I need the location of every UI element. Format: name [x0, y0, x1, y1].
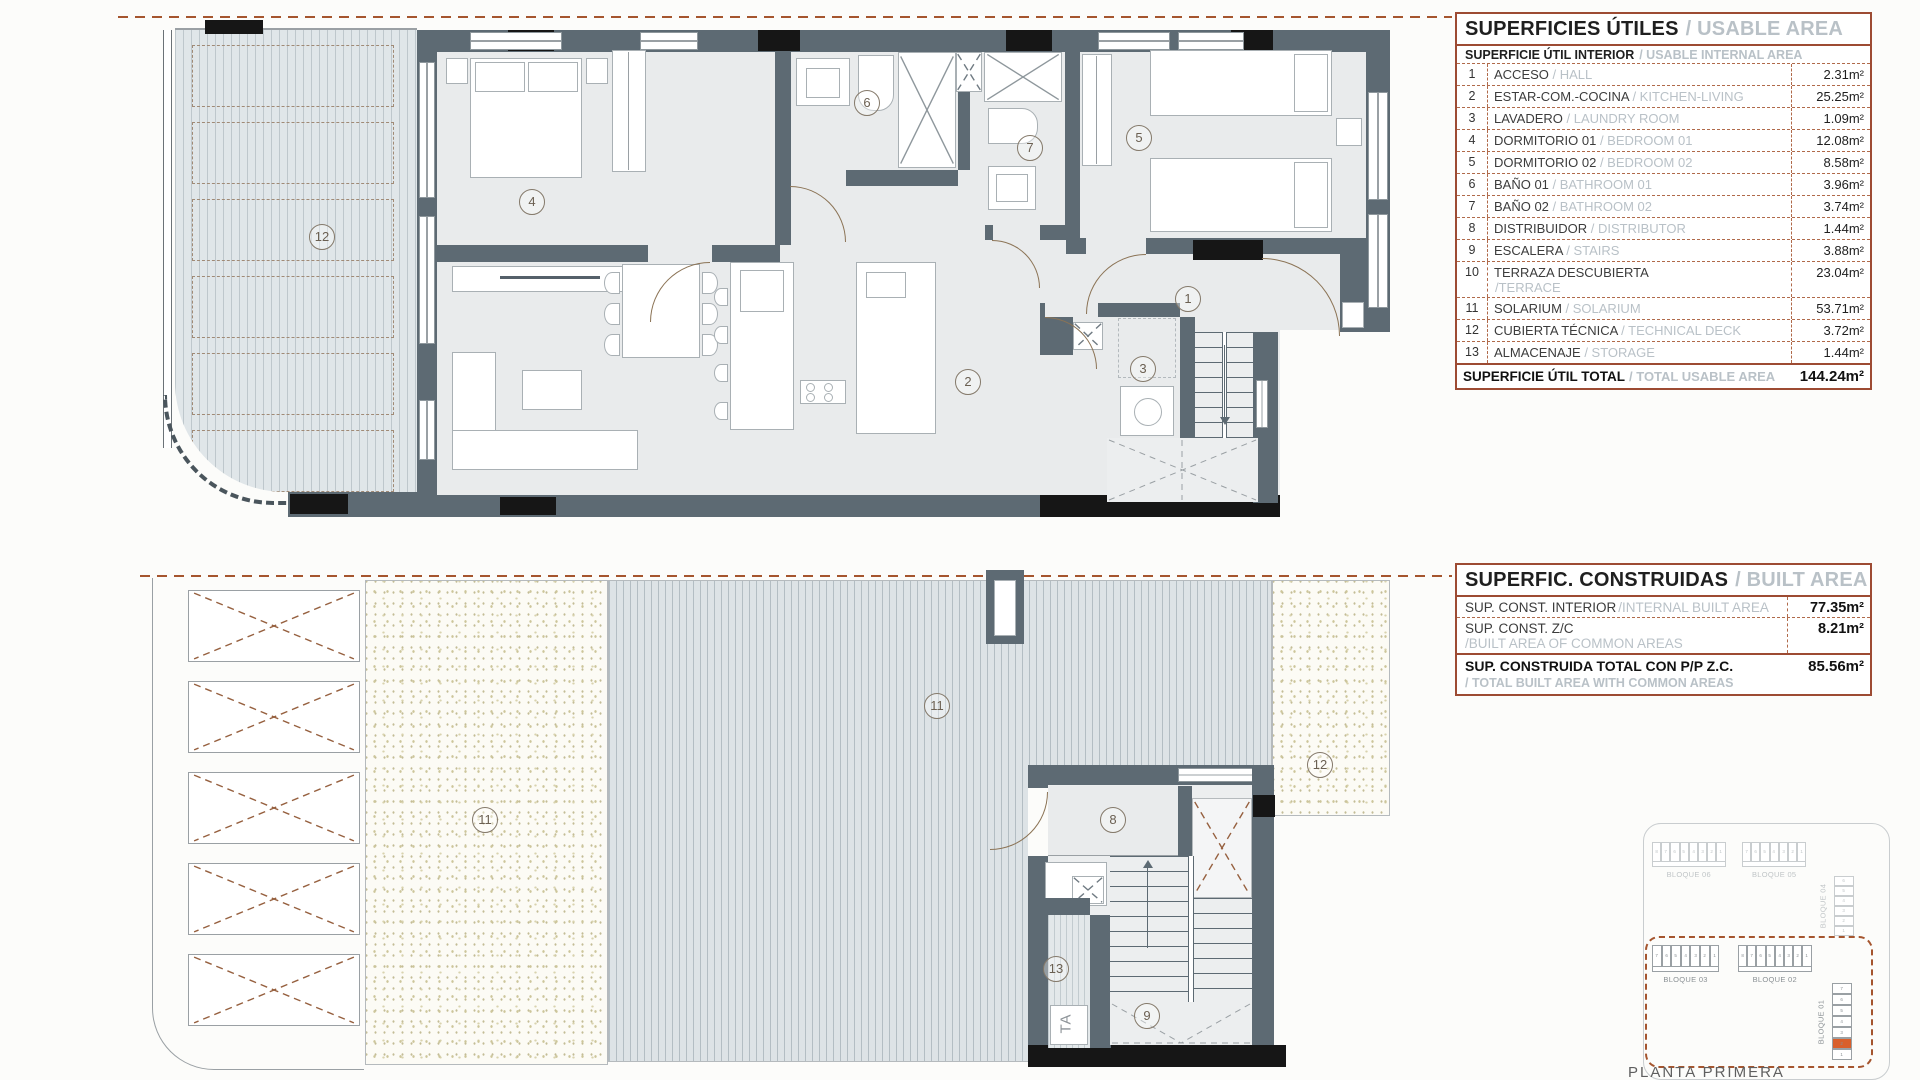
wall-stub: [1178, 786, 1192, 856]
key-plan-block: 87654321: [1738, 945, 1812, 967]
key-plan-block-balcony-row: [1652, 967, 1719, 972]
key-plan-block: 7654321: [1652, 945, 1719, 967]
wall-bath2-bottom: [985, 225, 993, 240]
built-area-table: SUPERFIC. CONSTRUIDAS / BUILT AREA SUP. …: [1455, 563, 1872, 696]
entrance-threshold: [1342, 302, 1364, 328]
usable-area-row: 11SOLARIUM / SOLARIUM53.71m²: [1457, 297, 1870, 319]
room-label-bathroom2: 7: [1017, 135, 1043, 161]
chimney-flue: [994, 580, 1016, 636]
solarium-deck-top: [608, 580, 1272, 770]
key-plan-block-balcony-row: [1738, 967, 1812, 972]
sliding-door: [419, 62, 435, 198]
boundary-dashed-line-lower: [140, 575, 1452, 577]
room-label-distributor: 8: [1100, 807, 1126, 833]
wall-bedroom1: [437, 245, 648, 262]
column-block: [500, 497, 556, 515]
column-block: [1253, 795, 1275, 817]
key-plan-block-label: BLOQUE 06: [1652, 870, 1726, 879]
solarium-deck-side: [608, 768, 1028, 1062]
key-plan-block: 654321: [1834, 876, 1854, 936]
wall-bedroom2-bottom: [1146, 238, 1390, 254]
room-label-terrace: 12: [309, 224, 335, 250]
column-block: [290, 494, 348, 514]
room-label-technical-deck: 12: [1307, 752, 1333, 778]
built-area-title: SUPERFIC. CONSTRUIDAS / BUILT AREA: [1457, 565, 1870, 597]
window: [1178, 768, 1258, 782]
room-label-stairs: 9: [1134, 1003, 1160, 1029]
wall-bedroom2-bottom: [1066, 238, 1086, 254]
room-label-bedroom1: 4: [519, 189, 545, 215]
key-plan-block: 7654321: [1832, 983, 1852, 1060]
key-plan-block: 7654321: [1742, 842, 1806, 862]
stair-block-wall-bottom: [1028, 1045, 1286, 1067]
sliding-door: [419, 216, 435, 344]
usable-area-subtitle: SUPERFICIE ÚTIL INTERIOR / USABLE INTERN…: [1457, 46, 1870, 63]
column-block: [1006, 30, 1052, 51]
usable-area-total-row: SUPERFICIE ÚTIL TOTAL / TOTAL USABLE ARE…: [1457, 363, 1870, 388]
key-plan-block-label: BLOQUE 02: [1738, 975, 1812, 984]
key-plan-block-balcony-row: [1742, 862, 1806, 867]
parking-space: [188, 863, 360, 935]
usable-area-row: 9ESCALERA / STAIRS3.88m²: [1457, 239, 1870, 261]
room-label-solarium-deck: 11: [924, 693, 950, 719]
usable-area-row: 2ESTAR-COM.-COCINA / KITCHEN-LIVING25.25…: [1457, 85, 1870, 107]
key-plan-block-balcony-row: [1652, 862, 1726, 867]
parking-space: [188, 954, 360, 1026]
stairs-dashed-return: [1107, 438, 1258, 502]
wall-stairs-left: [1180, 317, 1195, 438]
sliding-door: [419, 400, 435, 460]
usable-area-row: 1ACCESO / HALL2.31m²: [1457, 63, 1870, 85]
usable-area-row: 6BAÑO 01 / BATHROOM 013.96m²: [1457, 173, 1870, 195]
parking-space: [188, 681, 360, 753]
window: [1368, 214, 1388, 308]
awning-dash-box: [192, 45, 394, 107]
door-arc-distributor: [990, 792, 1048, 850]
wall-bath1-bottom: [775, 170, 790, 186]
usable-area-row: 5DORMITORIO 02 / BEDROOM 028.58m²: [1457, 151, 1870, 173]
built-area-row: SUP. CONST. Z/C/BUILT AREA OF COMMON ARE…: [1457, 617, 1870, 653]
usable-area-row: 4DORMITORIO 01 / BEDROOM 0112.08m²: [1457, 129, 1870, 151]
window: [1178, 32, 1244, 50]
room-label-laundry: 3: [1130, 356, 1156, 382]
usable-area-table: SUPERFICIES ÚTILES / USABLE AREA SUPERFI…: [1455, 12, 1872, 390]
awning-dash-box: [192, 122, 394, 184]
void-shaft: [1192, 798, 1252, 898]
site-boundary: [244, 1069, 364, 1070]
built-area-rows: SUP. CONST. INTERIOR/INTERNAL BUILT AREA…: [1457, 597, 1870, 653]
usable-area-row: 13ALMACENAJE / STORAGE1.44m²: [1457, 341, 1870, 363]
stair-block-wall-left: [1028, 765, 1048, 788]
awning-dash-box: [192, 199, 394, 261]
wall-bath1-left: [775, 30, 791, 245]
column-block: [758, 30, 800, 51]
usable-area-row: 10TERRAZA DESCUBIERTA /TERRACE23.04m²: [1457, 261, 1870, 297]
usable-area-rows: 1ACCESO / HALL2.31m²2ESTAR-COM.-COCINA /…: [1457, 63, 1870, 363]
wall-storage-right: [1090, 915, 1111, 1048]
key-plan-block-label: BLOQUE 05: [1742, 870, 1806, 879]
column-block: [1193, 240, 1263, 260]
room-label-hall: 1: [1175, 286, 1201, 312]
window: [1098, 32, 1170, 50]
floor-plan-sheet: 12 4 6 7 5 1 3 2: [0, 0, 1920, 1080]
usable-area-row: 12CUBIERTA TÉCNICA / TECHNICAL DECK3.72m…: [1457, 319, 1870, 341]
usable-area-title: SUPERFICIES ÚTILES / USABLE AREA: [1457, 14, 1870, 46]
boundary-dashed-line-upper: [118, 16, 1452, 18]
wall-bedroom1: [712, 245, 780, 262]
window: [1256, 380, 1268, 428]
terrace-railing: [163, 30, 172, 448]
key-plan-block-label: BLOQUE 01: [1817, 999, 1826, 1043]
column-block: [205, 20, 263, 34]
key-plan-caption: PLANTA PRIMERA: [1628, 1064, 1785, 1080]
room-label-storage: 13: [1043, 956, 1069, 982]
wall-bath1-bottom: [846, 170, 958, 186]
parking-space: [188, 590, 360, 662]
terrace-rounded-corner: [163, 395, 293, 505]
key-plan-block-label: BLOQUE 04: [1819, 884, 1828, 928]
wall-storage-top: [1028, 898, 1090, 915]
site-boundary: [152, 578, 153, 1008]
usable-area-row: 8DISTRIBUIDOR / DISTRIBUTOR1.44m²: [1457, 217, 1870, 239]
wall-shaft: [958, 30, 970, 170]
room-label-bathroom1: 6: [854, 90, 880, 116]
storage-ta-text: TA: [1058, 1013, 1075, 1033]
key-plan-block-label: BLOQUE 03: [1652, 975, 1719, 984]
technical-deck: [1272, 580, 1390, 816]
usable-area-row: 7BAÑO 02 / BATHROOM 023.74m²: [1457, 195, 1870, 217]
window: [470, 32, 562, 50]
window: [640, 32, 698, 50]
parking-space: [188, 772, 360, 844]
wall-laundry-top: [1040, 303, 1045, 317]
built-area-row: SUP. CONST. INTERIOR/INTERNAL BUILT AREA…: [1457, 597, 1870, 617]
awning-dash-box: [192, 276, 394, 338]
key-plan-block: 87654321: [1652, 842, 1726, 862]
room-label-solarium-main: 11: [472, 807, 498, 833]
built-area-total-row: SUP. CONSTRUIDA TOTAL CON P/P Z.C. / TOT…: [1457, 653, 1870, 694]
usable-area-row: 3LAVADERO / LAUNDRY ROOM1.09m²: [1457, 107, 1870, 129]
room-label-living: 2: [955, 369, 981, 395]
window: [1368, 92, 1388, 200]
wall-bath2-right: [1065, 30, 1080, 240]
room-label-bedroom2: 5: [1126, 125, 1152, 151]
